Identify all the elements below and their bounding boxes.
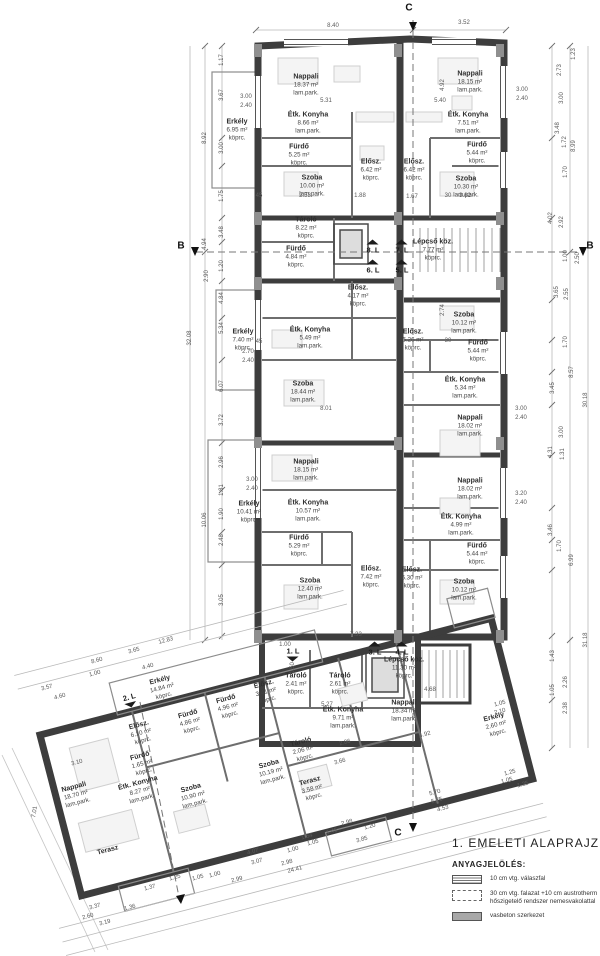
dimension-label: 1.00 [287,846,300,855]
room-finish: lam.park. [288,515,328,522]
room-finish: köprc. [348,300,369,307]
dimension-label: 2.98 [341,819,354,828]
room-name: Tároló [295,217,316,225]
room-area: 6.42 m² [404,167,425,174]
legend-item-partition: 10 cm vtg. válaszfal [452,875,600,884]
legend-label: 30 cm vtg. falazat +10 cm austrotherm hő… [490,890,598,906]
dimension-label: 3.46 [548,524,554,536]
entry-wedge-icon [396,240,408,245]
room-finish: lam.park. [293,474,318,481]
room-label: Elősz.6.10 m²köprc. [128,719,154,747]
room-label: Terasz3.58 m²köprc. [299,775,326,803]
room-name: Szoba [451,312,476,320]
dimension-label: 1.20 [364,823,377,832]
room-area: 18.02 m² [457,423,482,430]
dimension-label: 2.40 [516,96,528,102]
room-label: Erkély7.40 m²köprc. [232,329,253,352]
dimension-label: 3.00 [515,406,527,412]
room-finish: lam.park. [288,127,328,134]
room-name: Tároló [285,673,306,681]
room-area: 9.71 m² [323,715,363,722]
unit-number: 1. L [287,647,300,656]
room-area: 5.34 m² [445,385,485,392]
room-area: 4.17 m² [348,293,369,300]
section-marker: C [405,3,412,14]
entry-wedge-icon [369,642,381,647]
dimension-label: 4.02 [548,212,554,224]
dimension-label: 4.40 [142,663,155,672]
room-area: 5.44 m² [467,551,488,558]
unit-label: 4. L [396,642,409,657]
room-name: Fürdő [468,340,489,348]
dimension-label: 3.20 [515,491,527,497]
legend-label: vasbeton szerkezet [490,912,598,920]
dimension-label: 2.74 [440,304,446,316]
dimension-label: 12.83 [158,636,174,646]
room-label: Szoba10.12 m²lam.park. [451,312,476,335]
room-label: Tároló2.06 m²köprc. [290,736,317,764]
dimension-label: 1.50 [290,662,296,674]
dimension-label: 2.50 [575,252,581,264]
dimension-label: 32.08 [187,330,193,345]
dimension-label: 1.45 [326,828,339,837]
entry-wedge-icon [367,260,379,265]
dimension-label: 30 [445,338,452,344]
room-label: Étk. Konyha10.57 m²lam.park. [288,500,328,523]
dimension-label: 30.18 [583,392,589,407]
room-label: Étk. Konyha8.27 m²lam.park. [118,775,163,808]
room-area: 6.42 m² [361,167,382,174]
room-name: Elősz. [348,285,369,293]
dimension-label: 2.40 [515,415,527,421]
dimension-label: 8.40 [327,23,339,29]
room-area: 10.30 m² [453,184,478,191]
legend-heading: ANYAGJELÖLÉS: [452,860,600,869]
dimension-label: 3.19 [99,919,112,928]
dimension-label: 8.57 [569,366,575,378]
dimension-label: 2.40 [242,358,254,364]
unit-number: 5. L [396,266,409,275]
dimension-label: 1.25 [169,874,182,883]
section-marker: B [586,241,593,252]
unit-label: 1. L [287,647,300,662]
room-name: Nappali [457,478,482,486]
unit-number: 3. L [369,648,382,657]
room-finish: lam.park. [457,86,482,93]
room-name: Elősz. [404,159,425,167]
room-label: Étk. Konyha5.34 m²lam.park. [445,377,485,400]
room-label: Nappali18.15 m²lam.park. [293,459,318,482]
dimension-label: 1.70 [557,540,563,552]
room-area: 4.99 m² [441,522,481,529]
dimension-label: 3.05 [219,594,225,606]
room-name: Nappali [457,415,482,423]
room-area: 6.26 m² [403,337,424,344]
room-name: Étk. Konyha [290,327,330,335]
room-area: 10.00 m² [299,183,324,190]
entry-wedge-icon [367,240,379,245]
room-label: Lépcső köz.11.30 m²köprc. [384,657,424,680]
dimension-label: 7.33 [350,632,362,638]
room-finish: köprc. [413,254,453,261]
room-name: Erkély [232,329,253,337]
room-label: Szoba18.44 m²lam.park. [290,381,315,404]
room-finish: köprc. [329,688,350,695]
dimension-label: 1.31 [560,448,566,460]
dimension-label: 8.60 [91,657,104,666]
dimension-label: 5.31 [320,98,332,104]
room-label: Étk. Konyha7.51 m²lam.park. [448,112,488,135]
room-finish: lam.park. [297,593,322,600]
room-label: Nappali18.15 m²lam.park. [457,71,482,94]
dimension-label: 1.88 [354,193,366,199]
room-finish: köprc. [289,159,310,166]
room-label: Elősz.3.41 m²köprc. [253,678,279,706]
dimension-label: 1.17 [219,54,225,66]
room-name: Elősz. [403,329,424,337]
dimension-label: 3.67 [219,89,225,101]
room-area: 5.44 m² [467,150,488,157]
dimension-label: 1.05 [501,777,514,786]
dimension-label: 4.92 [440,79,446,91]
dimension-label: 1.25 [517,781,530,790]
room-label: Fürdő1.65 m²köprc. [129,750,155,778]
dimension-label: 4.07 [247,848,260,857]
room-label: Lépcső köz.7.77 m²köprc. [413,239,453,262]
room-name: Elősz. [402,567,423,575]
room-area: 6.30 m² [402,575,423,582]
dimension-label: 6.99 [569,554,575,566]
floor-plan-page: Nappali18.37 m²lam.park.Erkély6.95 m²köp… [0,0,600,956]
room-finish: lam.park. [457,493,482,500]
room-name: Szoba [299,175,324,183]
dimension-label: 2.86 [339,739,352,748]
room-label: Fürdő5.25 m²köprc. [289,144,310,167]
room-finish: lam.park. [441,529,481,536]
room-finish: lam.park. [290,342,330,349]
dimension-label: 1.70 [563,336,569,348]
entry-wedge-icon [396,642,408,647]
dimension-label: 2.53 [299,193,311,199]
room-finish: köprc. [404,174,425,181]
dimension-label: 1.05 [550,684,556,696]
dimension-label: 2.38 [563,702,569,714]
unit-number: 7. L [396,246,409,255]
room-name: Étk. Konyha [441,514,481,522]
unit-number: 8. L [367,246,380,255]
dimension-label: 1.36 [124,904,137,913]
room-label: Étk. Konyha9.71 m²lam.park. [323,707,363,730]
room-area: 10.41 m² [237,509,261,516]
room-area: 18.15 m² [457,79,482,86]
room-name: Erkély [237,501,261,509]
dimension-label: 4.92 [419,731,432,740]
room-label: Elősz.6.42 m²köprc. [404,159,425,182]
room-name: Fürdő [286,246,307,254]
dimension-label: 2.99 [231,876,244,885]
room-name: Nappali [457,71,482,79]
room-finish: köprc. [467,157,488,164]
dimension-label: 2.55 [564,288,570,300]
dimension-label: 1.43 [550,650,556,662]
dimension-label: 2.96 [219,456,225,468]
legend-label: 10 cm vtg. válaszfal [490,875,598,883]
dimension-label: 3.00 [516,87,528,93]
unit-label: 2. L [122,691,138,709]
dimension-label: 1.90 [219,508,225,520]
unit-label: 7. L [396,240,409,255]
room-name: Lépcső köz. [384,657,424,665]
dimension-label: 1.81 [219,484,225,496]
room-finish: lam.park. [323,722,363,729]
title-block: 1. EMELETI ALAPRAJZ m=1:100 ANYAGJELÖLÉS… [452,836,600,927]
dimension-label: 45 [256,339,263,345]
legend: ANYAGJELÖLÉS: 10 cm vtg. válaszfal 30 cm… [452,860,600,921]
dimension-label: 3.00 [559,426,565,438]
dimension-label: 3.85 [356,836,369,845]
dimension-label: 2.40 [515,500,527,506]
room-finish: köprc. [402,582,423,589]
dimension-label: 2.48 [219,534,225,546]
room-label: Nappali18.37 m²lam.park. [293,74,318,97]
dimension-label: 1.05 [192,874,205,883]
room-name: Tároló [329,673,350,681]
dimension-label: 3.00 [559,92,565,104]
room-label: Szoba10.90 m²lam.park. [178,782,209,811]
room-area: 5.44 m² [468,348,489,355]
room-label: Erkély6.95 m²köprc. [226,119,247,142]
unit-label: 5. L [396,260,409,275]
dimension-label: 3.10 [71,759,84,768]
room-finish: köprc. [384,672,424,679]
room-name: Szoba [453,176,478,184]
dimension-label: 3.37 [89,903,102,912]
room-area: 18.34 m² [391,708,416,715]
dimension-label: 1.75 [219,190,225,202]
room-finish: köprc. [285,688,306,695]
room-finish: köprc. [361,581,382,588]
unit-label: 6. L [367,260,380,275]
legend-swatch-masonry-icon [452,890,482,901]
room-label: Szoba12.40 m²lam.park. [297,578,322,601]
dimension-label: 4.94 [202,238,208,250]
room-name: Fürdő [289,144,310,152]
dimension-label: 3.00 [240,94,252,100]
room-name: Erkély [226,119,247,127]
room-finish: köprc. [361,174,382,181]
dimension-label: 5.27 [321,702,333,708]
entry-wedge-icon [396,260,408,265]
room-label: Elősz.7.42 m²köprc. [361,566,382,589]
dimension-label: 2.70 [242,349,254,355]
room-area: 2.61 m² [329,681,350,688]
dimension-label: 1.23 [571,48,577,60]
room-area: 6.95 m² [226,127,247,134]
room-area: 5.49 m² [290,335,330,342]
dimension-label: 3.57 [41,684,54,693]
dimension-label: 3.45 [550,382,556,394]
dimension-label: 3.65 [554,286,560,298]
labels-layer: Nappali18.37 m²lam.park.Erkély6.95 m²köp… [0,0,600,956]
room-label: Étk. Konyha5.49 m²lam.park. [290,327,330,350]
room-label: Nappali18.70 m²lam.park. [61,781,92,810]
room-label: Fürdő5.29 m²köprc. [289,535,310,558]
room-label: Nappali18.34 m²lam.park. [391,700,416,723]
dimension-label: 2.40 [240,103,252,109]
unit-number: 4. L [396,648,409,657]
room-label: Nappali18.02 m²lam.park. [457,415,482,438]
dimension-label: 31.18 [583,632,589,647]
dimension-label: 5.40 [434,98,446,104]
room-area: 10.12 m² [451,320,476,327]
room-area: 4.84 m² [286,254,307,261]
room-name: Elősz. [361,566,382,574]
room-label: Tároló8.22 m²köprc. [295,217,316,240]
room-name: Lépcső köz. [413,239,453,247]
legend-item-concrete: vasbeton szerkezet [452,912,600,921]
room-finish: köprc. [467,558,488,565]
room-finish: lam.park. [290,396,315,403]
dimension-label: 2.92 [559,216,565,228]
room-name: Fürdő [289,535,310,543]
room-label: Erkély14.84 m²köprc. [147,674,177,702]
section-marker: C [394,828,401,839]
room-area: 2.41 m² [285,681,306,688]
room-finish: köprc. [295,232,316,239]
room-name: Szoba [451,579,476,587]
room-finish: lam.park. [391,715,416,722]
room-area: 7.40 m² [232,337,253,344]
dimension-label: 3.07 [251,858,264,867]
dimension-label: 8.92 [202,132,208,144]
dimension-label: 1.20 [219,260,225,272]
room-name: Szoba [297,578,322,586]
room-name: Étk. Konyha [288,112,328,120]
dimension-label: 4.31 [548,446,554,458]
dimension-label: 3.00 [246,477,258,483]
room-label: Elősz.6.30 m²köprc. [402,567,423,590]
dimension-label: 5.75 [431,797,444,806]
room-name: Elősz. [361,159,382,167]
legend-item-masonry: 30 cm vtg. falazat +10 cm austrotherm hő… [452,890,600,906]
room-finish: lam.park. [448,127,488,134]
dimension-label: 3.52 [458,20,470,26]
room-label: Tároló2.41 m²köprc. [285,673,306,696]
dimension-label: 1.70 [563,166,569,178]
room-label: Elősz.6.42 m²köprc. [361,159,382,182]
dimension-label: 4.60 [54,693,67,702]
dimension-label: 1.05 [307,839,320,848]
dimension-label: 3.62 [459,193,471,199]
room-label: Fürdő4.86 m²köprc. [177,708,203,736]
dimension-label: 3.48 [219,226,225,238]
drawing-title: 1. EMELETI ALAPRAJZ m=1:100 [452,836,600,850]
room-area: 10.57 m² [288,508,328,515]
unit-number: 6. L [367,266,380,275]
room-finish: köprc. [289,550,310,557]
room-label: Fürdő4.84 m²köprc. [286,246,307,269]
room-label: Elősz.6.26 m²köprc. [403,329,424,352]
dimension-label: 1.67 [406,194,418,200]
dimension-label: 1.00 [209,871,222,880]
dimension-label: 8.99 [571,140,577,152]
dimension-label: 3.72 [219,414,225,426]
dimension-label: 2.40 [246,486,258,492]
room-finish: köprc. [468,355,489,362]
dimension-label: 4.84 [219,292,225,304]
room-label: Tároló2.61 m²köprc. [329,673,350,696]
room-finish: köprc. [403,344,424,351]
room-area: 7.77 m² [413,247,453,254]
dimension-label: 1.72 [562,136,568,148]
room-name: Nappali [293,74,318,82]
room-label: Étk. Konyha8.66 m²lam.park. [288,112,328,135]
dimension-label: 5.34 [219,322,225,334]
dimension-label: 7.01 [31,806,39,819]
room-area: 5.29 m² [289,543,310,550]
room-name: Fürdő [467,142,488,150]
unit-label: 8. L [367,240,380,255]
room-finish: köprc. [286,261,307,268]
room-label: Elősz.4.17 m²köprc. [348,285,369,308]
dimension-label: 3.65 [128,647,141,656]
legend-swatch-partition-icon [452,875,482,884]
dimension-label: 45 [256,193,263,199]
room-name: Fürdő [467,543,488,551]
unit-label: 3. L [369,642,382,657]
room-finish: köprc. [226,134,247,141]
dimension-label: 10.06 [202,512,208,527]
dimension-label: 30 [445,193,452,199]
room-label: Fürdő5.44 m²köprc. [467,142,488,165]
room-area: 5.25 m² [289,152,310,159]
dimension-label: 6.07 [219,380,225,392]
dimension-label: 2.98 [281,859,294,868]
room-name: Szoba [290,381,315,389]
room-area: 7.51 m² [448,120,488,127]
room-area: 10.12 m² [451,587,476,594]
room-label: Erkély10.41 m²köprc. [237,501,261,524]
room-label: Fürdő4.96 m²köprc. [215,693,241,721]
dimension-label: 2.90 [204,270,210,282]
room-label: Étk. Konyha4.99 m²lam.park. [441,514,481,537]
dimension-label: 1.00 [563,250,569,262]
entry-wedge-icon [287,657,299,662]
legend-swatch-concrete-icon [452,912,482,921]
room-finish: lam.park. [451,327,476,334]
room-area: 11.30 m² [384,665,424,672]
room-name: Nappali [293,459,318,467]
room-label: Nappali18.02 m²lam.park. [457,478,482,501]
room-label: Szoba10.19 m²lam.park. [256,758,287,787]
room-area: 7.42 m² [361,574,382,581]
room-name: Étk. Konyha [445,377,485,385]
dimension-label: 3.66 [334,758,347,767]
dimension-label: 1.00 [89,670,102,679]
room-area: 8.22 m² [295,225,316,232]
dimension-label: 4.53 [437,805,450,814]
room-label: Szoba10.12 m²lam.park. [451,579,476,602]
room-finish: lam.park. [293,89,318,96]
room-area: 8.66 m² [288,120,328,127]
room-label: Fürdő5.44 m²köprc. [467,543,488,566]
dimension-label: 8.01 [320,406,332,412]
room-finish: lam.park. [451,594,476,601]
room-area: 18.02 m² [457,486,482,493]
dimension-label: 3.00 [219,142,225,154]
dimension-label: 2.60 [82,913,95,922]
room-label: Terasz [96,844,119,858]
